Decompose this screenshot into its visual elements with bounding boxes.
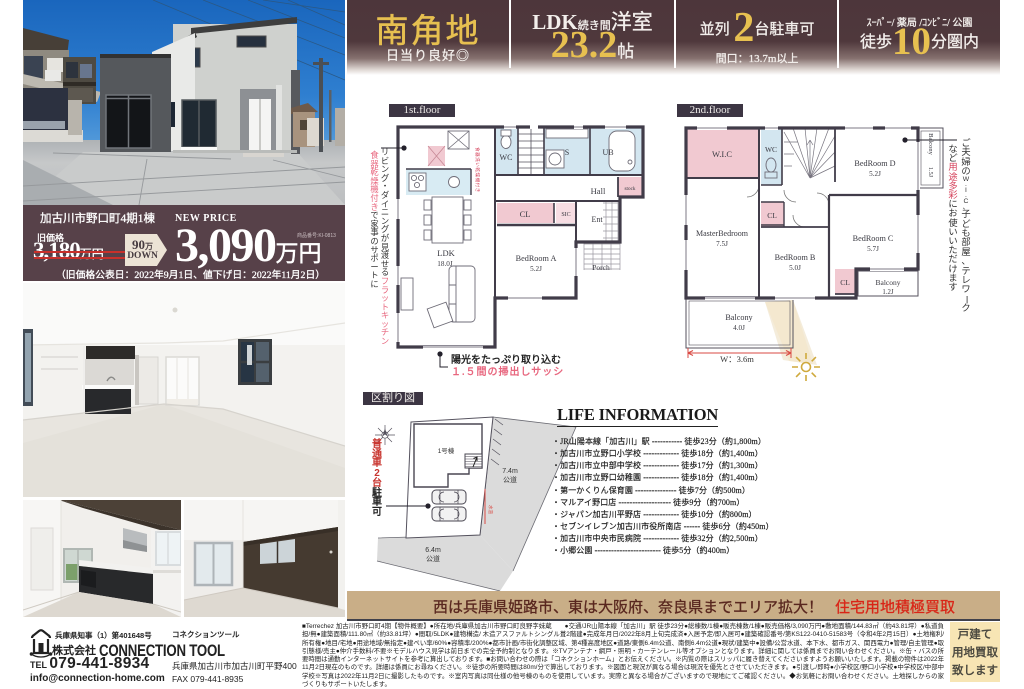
svg-text:MasterBedroom: MasterBedroom [696,229,749,238]
svg-text:18.0J: 18.0J [437,260,453,268]
svg-text:陽光をたっぷり取り込む: 陽光をたっぷり取り込む [451,353,561,366]
svg-text:Balcony: Balcony [725,313,753,322]
svg-text:5.2J: 5.2J [530,265,542,273]
svg-text:Hall: Hall [591,186,606,196]
svg-text:W：3.6m: W：3.6m [720,354,754,364]
svg-text:Porch: Porch [592,263,610,272]
svg-text:UB: UB [602,148,613,157]
svg-text:BedRoom D: BedRoom D [854,159,895,168]
svg-text:5.0J: 5.0J [789,264,801,272]
svg-text:CL: CL [767,211,777,220]
svg-text:CL: CL [520,209,531,219]
svg-text:CL: CL [840,278,850,287]
svg-text:BedRoom B: BedRoom B [775,253,816,262]
svg-text:食器洗い乾燥機付き: 食器洗い乾燥機付き [474,147,481,193]
svg-text:BedRoom C: BedRoom C [853,234,894,243]
svg-text:stock: stock [625,186,636,192]
svg-text:BedRoom A: BedRoom A [516,254,557,263]
svg-text:公道: 公道 [503,475,517,484]
svg-text:Balcony: Balcony [927,133,934,155]
svg-text:SIC: SIC [561,212,570,218]
svg-text:4.0J: 4.0J [733,324,745,332]
svg-text:5.2J: 5.2J [869,170,881,178]
svg-text:7.5J: 7.5J [716,240,728,248]
svg-text:水道: 水道 [487,505,494,514]
svg-text:7.4m: 7.4m [502,468,518,475]
svg-text:Balcony: Balcony [876,278,901,287]
svg-text:1号棟: 1号棟 [438,446,455,455]
svg-text:W.I.C: W.I.C [712,149,732,159]
svg-text:WC: WC [765,145,777,154]
svg-text:1.2J: 1.2J [882,289,893,296]
svg-text:5.7J: 5.7J [867,245,879,253]
svg-text:WC: WC [500,153,513,162]
svg-text:6.4m: 6.4m [425,547,441,554]
svg-text:LDK: LDK [437,248,455,258]
svg-text:S: S [565,148,569,157]
svg-text:公道: 公道 [426,554,440,563]
svg-text:1.5J: 1.5J [927,167,934,178]
svg-text:１.５間の掃出しサッシ: １.５間の掃出しサッシ [451,365,564,378]
svg-text:Ent: Ent [591,215,603,224]
